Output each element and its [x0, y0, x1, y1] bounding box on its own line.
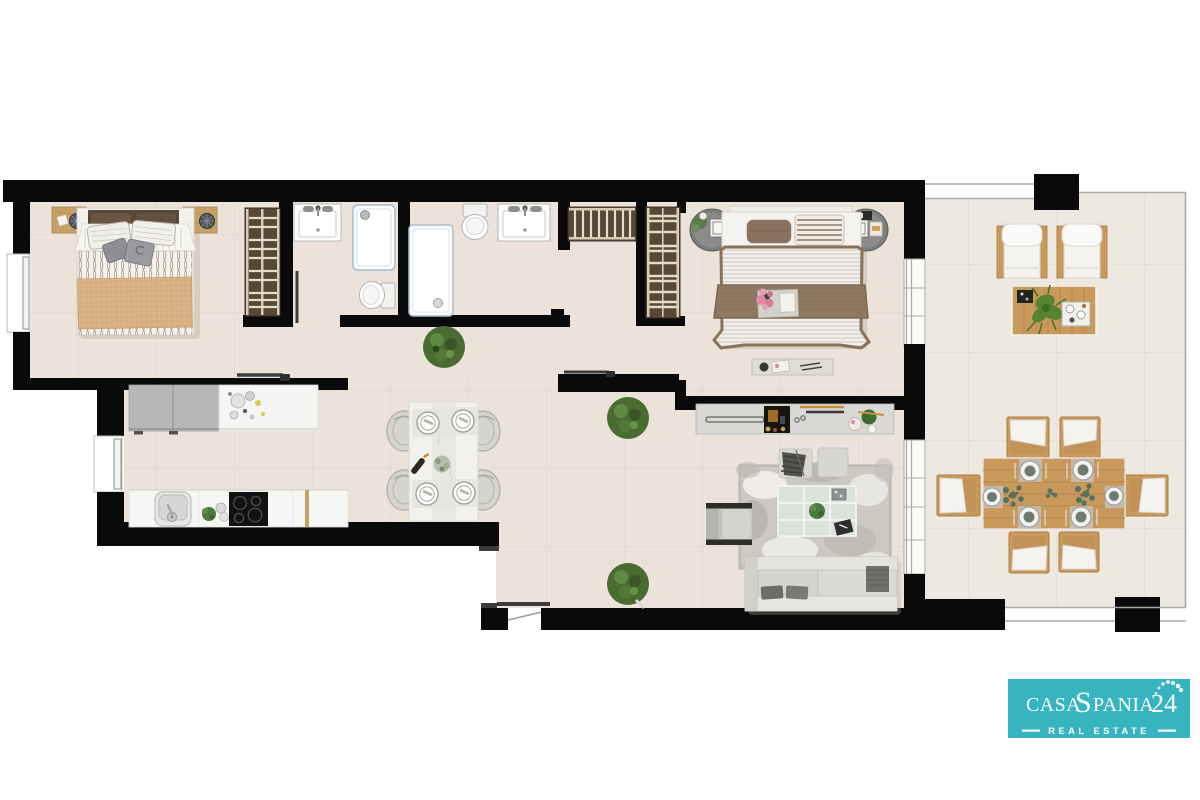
svg-text:24: 24: [1151, 689, 1177, 718]
svg-text:S: S: [1075, 686, 1092, 719]
svg-text:CASA: CASA: [1026, 694, 1081, 716]
svg-text:PANIA: PANIA: [1093, 694, 1154, 716]
svg-text:REAL ESTATE: REAL ESTATE: [1048, 726, 1150, 737]
